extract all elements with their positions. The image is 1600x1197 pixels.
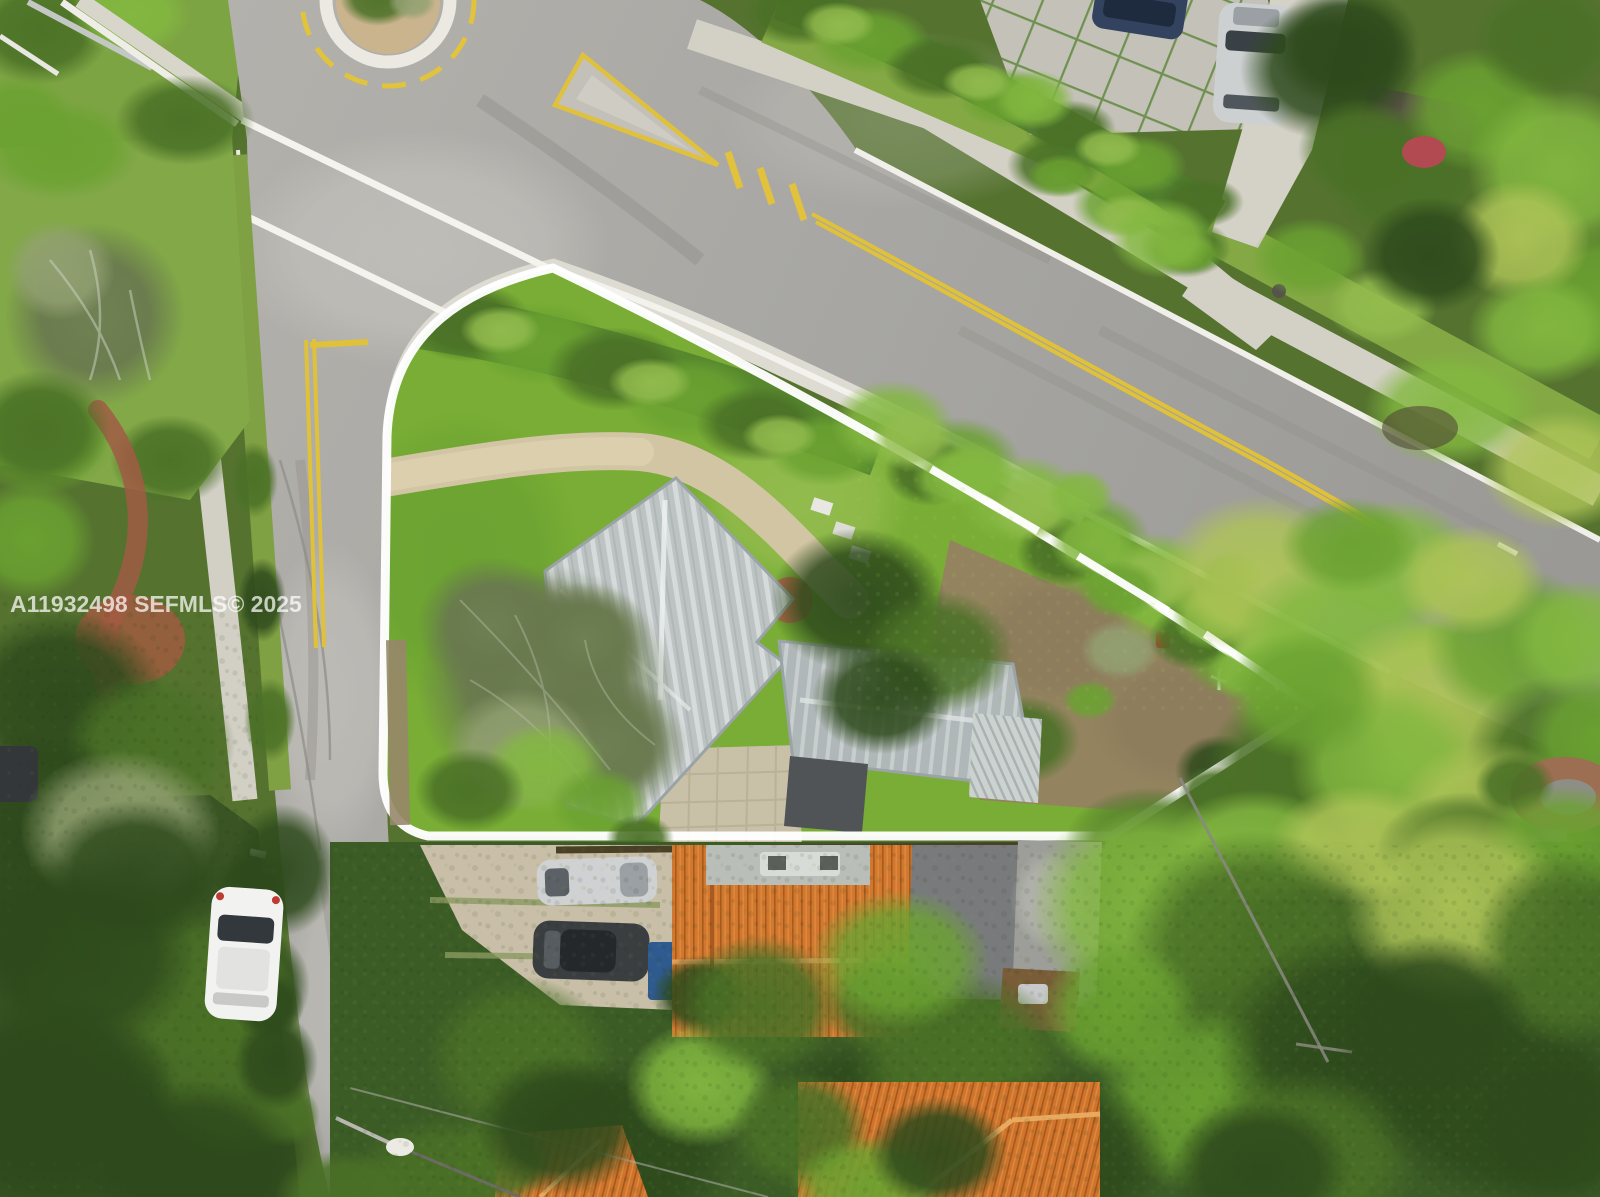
svg-text:A11932498 SEFMLS© 2025: A11932498 SEFMLS© 2025 — [10, 591, 302, 617]
